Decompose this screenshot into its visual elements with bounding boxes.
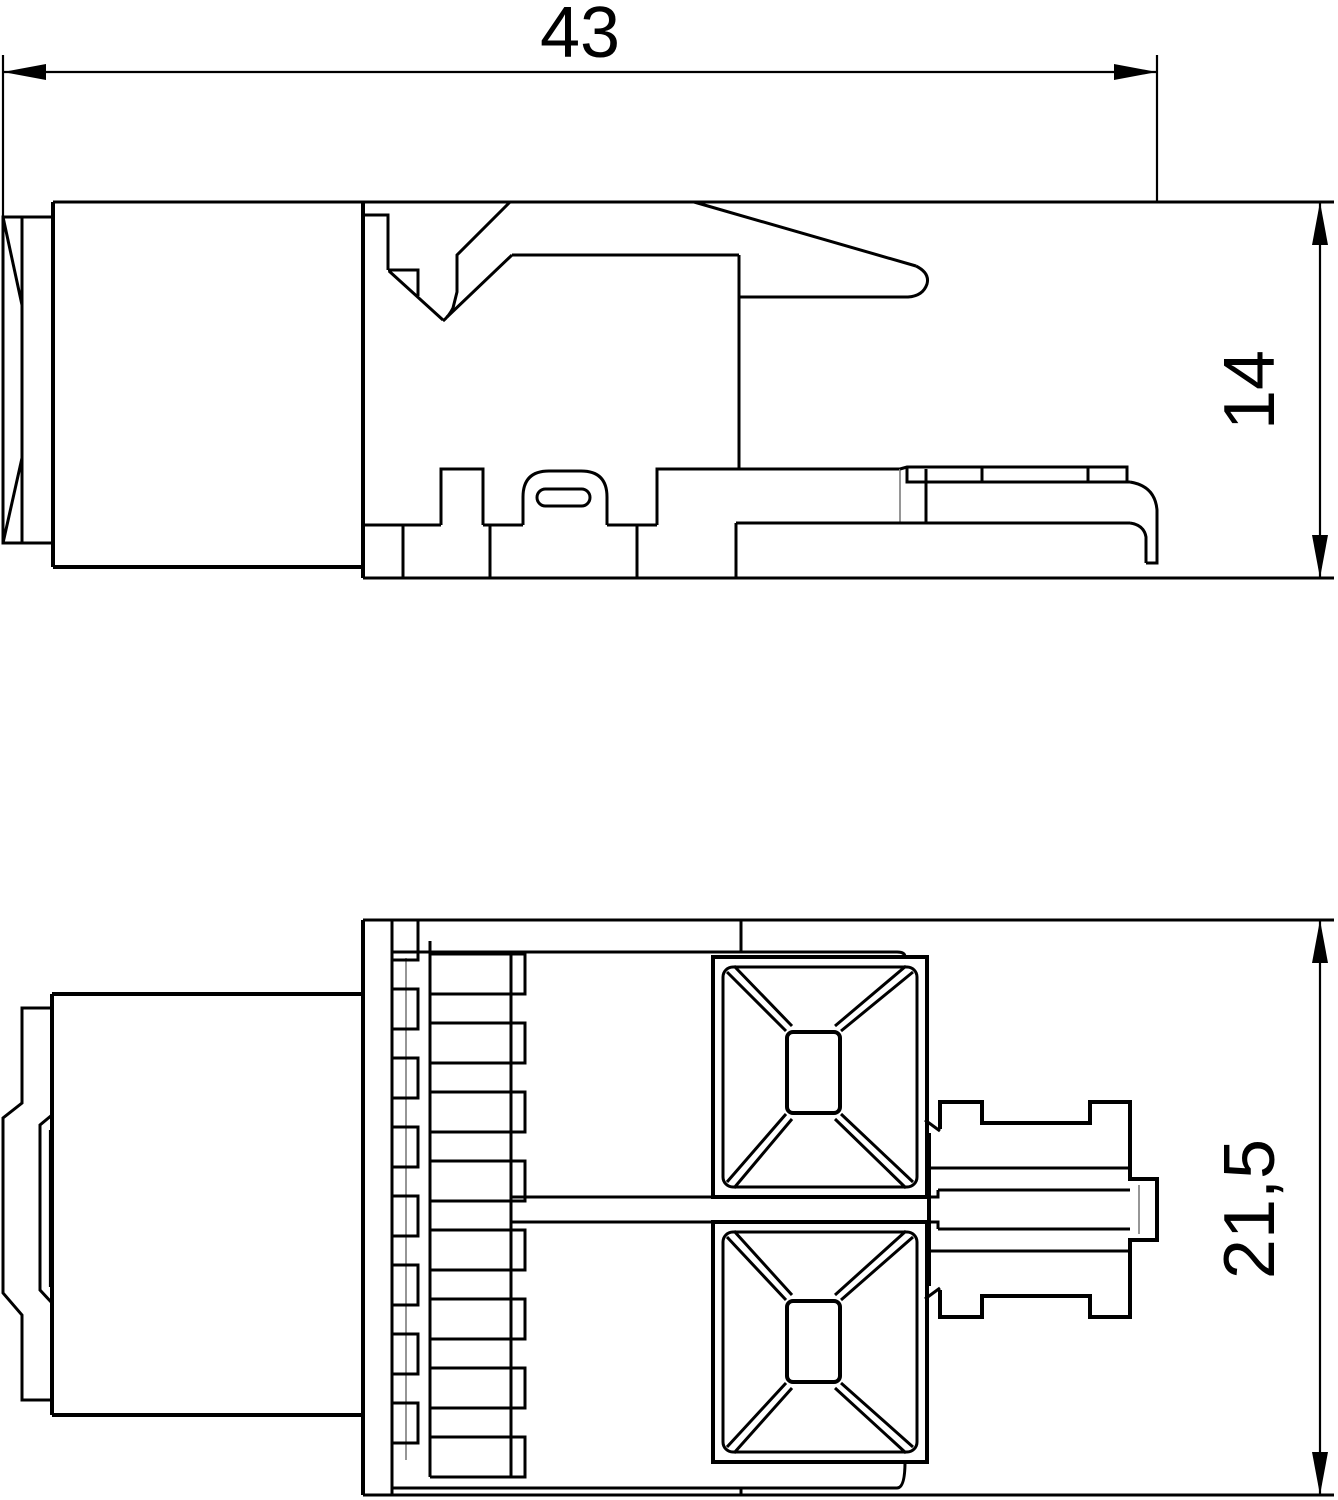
mounting-clip bbox=[925, 1102, 1157, 1317]
cable-boot-plan bbox=[3, 1008, 52, 1400]
drawing-canvas: 43 14 21,5 bbox=[0, 0, 1338, 1500]
plan-view bbox=[3, 920, 1157, 1495]
arrowhead-up-icon bbox=[1312, 202, 1328, 245]
arrowhead-down-icon bbox=[1312, 1452, 1328, 1495]
dimension-length-43: 43 bbox=[3, 0, 1157, 217]
contact-strip-side bbox=[736, 467, 1157, 563]
idc-tower-lower bbox=[713, 1222, 927, 1462]
arrowhead-left-icon bbox=[3, 64, 46, 80]
dimension-label-length: 43 bbox=[540, 0, 620, 73]
dimension-label-height: 14 bbox=[1210, 350, 1290, 430]
cable-boot-side bbox=[3, 217, 53, 543]
housing-front-block-side bbox=[53, 202, 363, 578]
dimension-label-width: 21,5 bbox=[1210, 1139, 1290, 1279]
latch-lever-side bbox=[363, 202, 928, 468]
arrowhead-down-icon bbox=[1312, 535, 1328, 578]
idc-tower-upper bbox=[713, 957, 927, 1197]
idc-comb bbox=[392, 920, 713, 1495]
dimension-height-14: 14 bbox=[53, 202, 1334, 578]
side-view bbox=[3, 202, 1157, 578]
arrowhead-right-icon bbox=[1114, 64, 1157, 80]
connector-technical-drawing: 43 14 21,5 bbox=[0, 0, 1338, 1500]
arrowhead-up-icon bbox=[1312, 920, 1328, 963]
housing-block-plan bbox=[52, 920, 363, 1495]
